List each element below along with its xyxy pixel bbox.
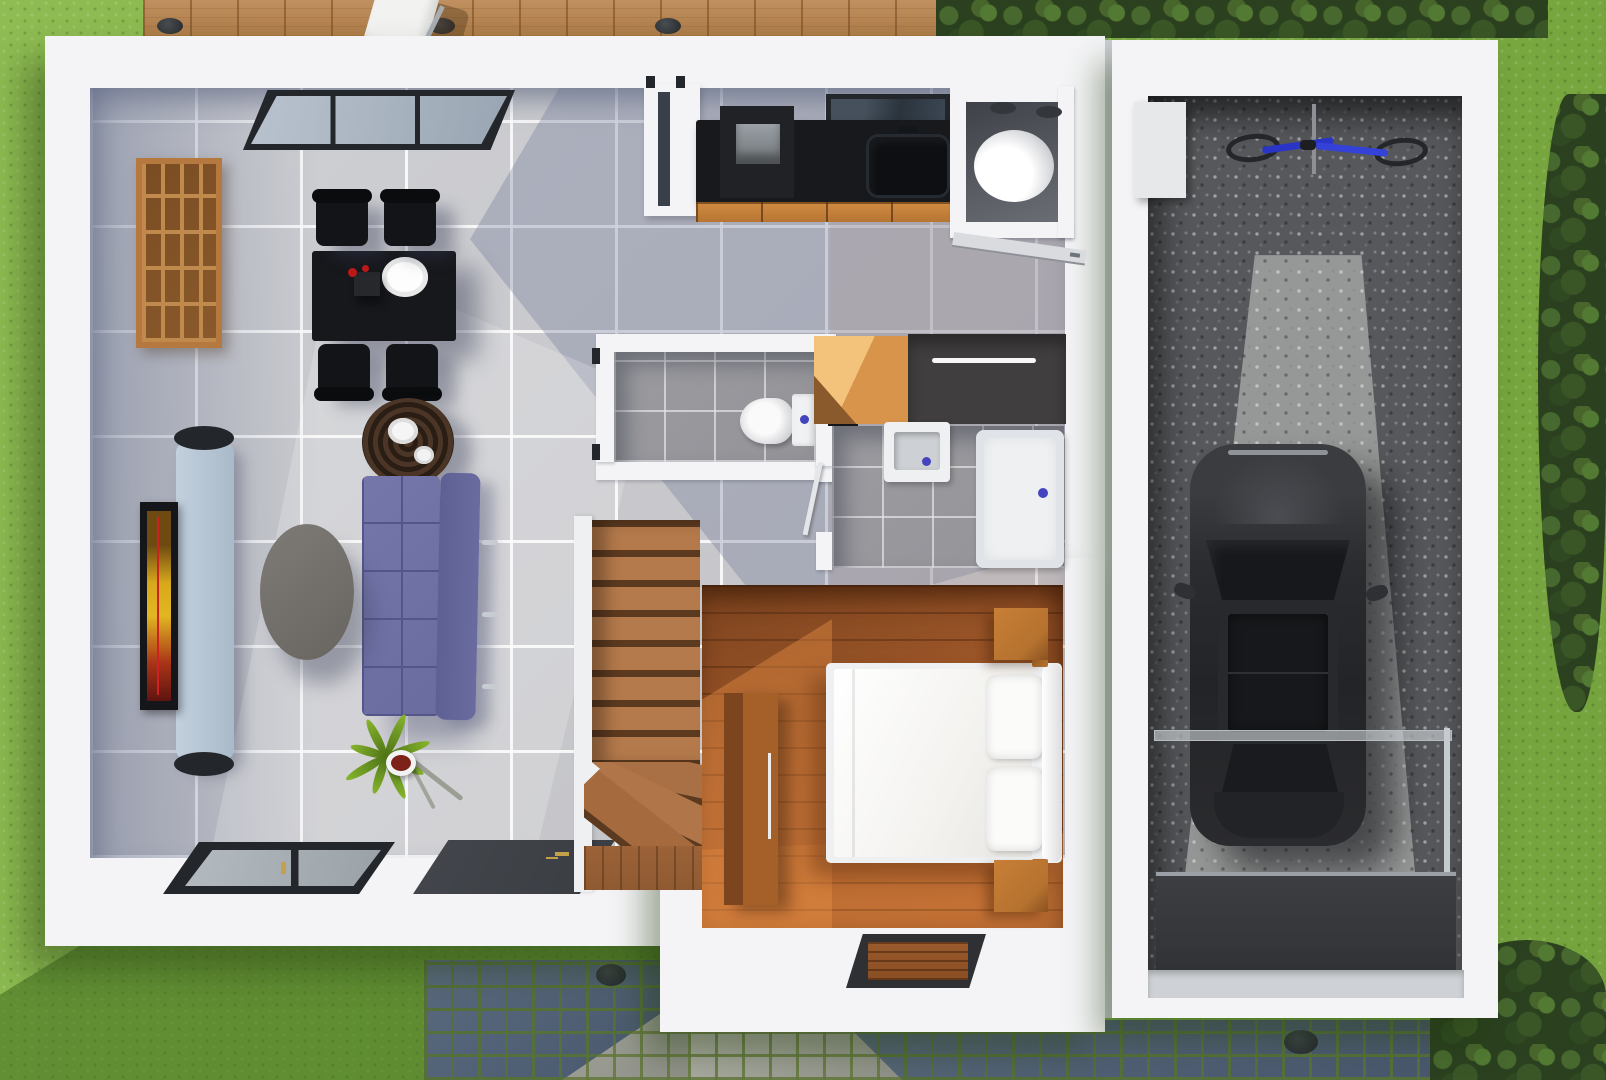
window-handle: [281, 862, 286, 874]
flower: [362, 265, 369, 272]
oval-coffee-table: [260, 524, 354, 660]
drain: [922, 457, 931, 466]
duvet-fold: [852, 669, 855, 857]
dining-chair: [384, 196, 436, 246]
orange-closet: [814, 336, 908, 424]
car-front-trim: [1228, 450, 1328, 455]
garage-wall-unit: [1134, 102, 1186, 198]
utility-wall: [950, 100, 966, 238]
nightstand: [994, 608, 1048, 660]
stair-winders: [584, 762, 702, 890]
door-handle: [555, 852, 569, 856]
storm-drain: [1284, 1030, 1318, 1054]
floor-plan-render: [0, 0, 1606, 1080]
door-jamb: [592, 444, 600, 460]
car: [1182, 444, 1380, 852]
sofa-foot: [482, 684, 498, 689]
water-heater: [974, 130, 1054, 202]
sofa-backrest: [435, 473, 480, 721]
faucet: [898, 126, 918, 133]
bathroom-wall: [816, 532, 832, 570]
cup: [414, 446, 434, 464]
tv-wall-panel: [176, 436, 234, 766]
wc-wall: [596, 462, 836, 480]
stove-top: [736, 124, 780, 164]
glass-railing: [1154, 730, 1452, 741]
bedroom-wardrobe: [724, 693, 778, 905]
basin: [894, 432, 940, 470]
flush-button: [800, 415, 809, 424]
stair-steps: [592, 520, 700, 766]
tv-screen-detail: [157, 517, 159, 695]
door-handle: [1070, 252, 1080, 257]
wall-stub: [644, 84, 700, 216]
washbasin: [884, 422, 950, 482]
storm-drain: [596, 964, 626, 986]
plant-pot: [386, 750, 416, 776]
door-jamb: [676, 76, 685, 88]
house-plant: [356, 726, 444, 818]
wc-wall: [596, 334, 836, 352]
dining-chair: [386, 344, 438, 394]
cube-bookshelf: [136, 158, 222, 348]
table-centerpiece: [354, 272, 380, 296]
stair-landing-boards: [584, 846, 702, 890]
bicycle-seat: [1300, 140, 1316, 150]
car-sunroof-divider: [1228, 672, 1328, 674]
deck-knob: [655, 18, 681, 34]
toilet-bowl: [740, 398, 794, 444]
door-jamb: [592, 348, 600, 364]
car-rear: [1214, 792, 1344, 838]
sofa-foot: [482, 540, 498, 545]
tv-screen: [147, 511, 171, 701]
north-window-frame: [243, 90, 515, 150]
tv: [140, 502, 178, 710]
garage-threshold: [1148, 970, 1464, 998]
headboard-roll: [1042, 663, 1062, 863]
wooden-deck: [143, 0, 940, 36]
stove: [720, 106, 794, 198]
sliding-window-frame: [163, 842, 395, 894]
wardrobe-handle: [932, 358, 1036, 363]
plate: [382, 257, 428, 297]
dining-chair: [318, 344, 370, 394]
shower-tray: [976, 430, 1064, 568]
bathroom-wall: [816, 426, 832, 466]
dining-table: [312, 251, 456, 341]
double-bed: [826, 663, 1062, 863]
round-side-table: [362, 398, 454, 486]
pillow: [986, 767, 1042, 851]
pillow: [986, 675, 1042, 759]
closet-shading: [814, 376, 856, 424]
car-windshield: [1206, 540, 1350, 604]
garage-entry-ramp: [1156, 872, 1456, 976]
tree-canopy: [936, 0, 1548, 38]
doormat: [846, 934, 986, 988]
deck-knob: [157, 18, 183, 34]
doormat-surface: [868, 942, 968, 980]
dining-chair: [316, 196, 368, 246]
ceiling-vent: [1036, 106, 1062, 118]
utility-wall: [950, 86, 1072, 102]
north-window-glass: [251, 96, 507, 144]
panel-cap: [174, 426, 234, 450]
car-rear-window: [1222, 744, 1338, 792]
nightstand: [994, 860, 1048, 912]
kitchen-cabinets: [696, 202, 958, 222]
ceiling-vent: [990, 102, 1016, 114]
wardrobe-handle: [768, 753, 771, 839]
kitchen-sink: [866, 134, 950, 198]
drain: [1038, 488, 1048, 498]
door-jamb: [646, 76, 655, 88]
panel-cap: [174, 752, 234, 776]
sofa-seat: [362, 476, 440, 716]
sofa-foot: [482, 612, 498, 617]
plate: [388, 418, 418, 444]
toilet-cistern: [792, 394, 816, 446]
pocket-door-slot: [658, 92, 670, 206]
dark-wardrobe: [908, 334, 1066, 424]
flower: [348, 268, 357, 277]
